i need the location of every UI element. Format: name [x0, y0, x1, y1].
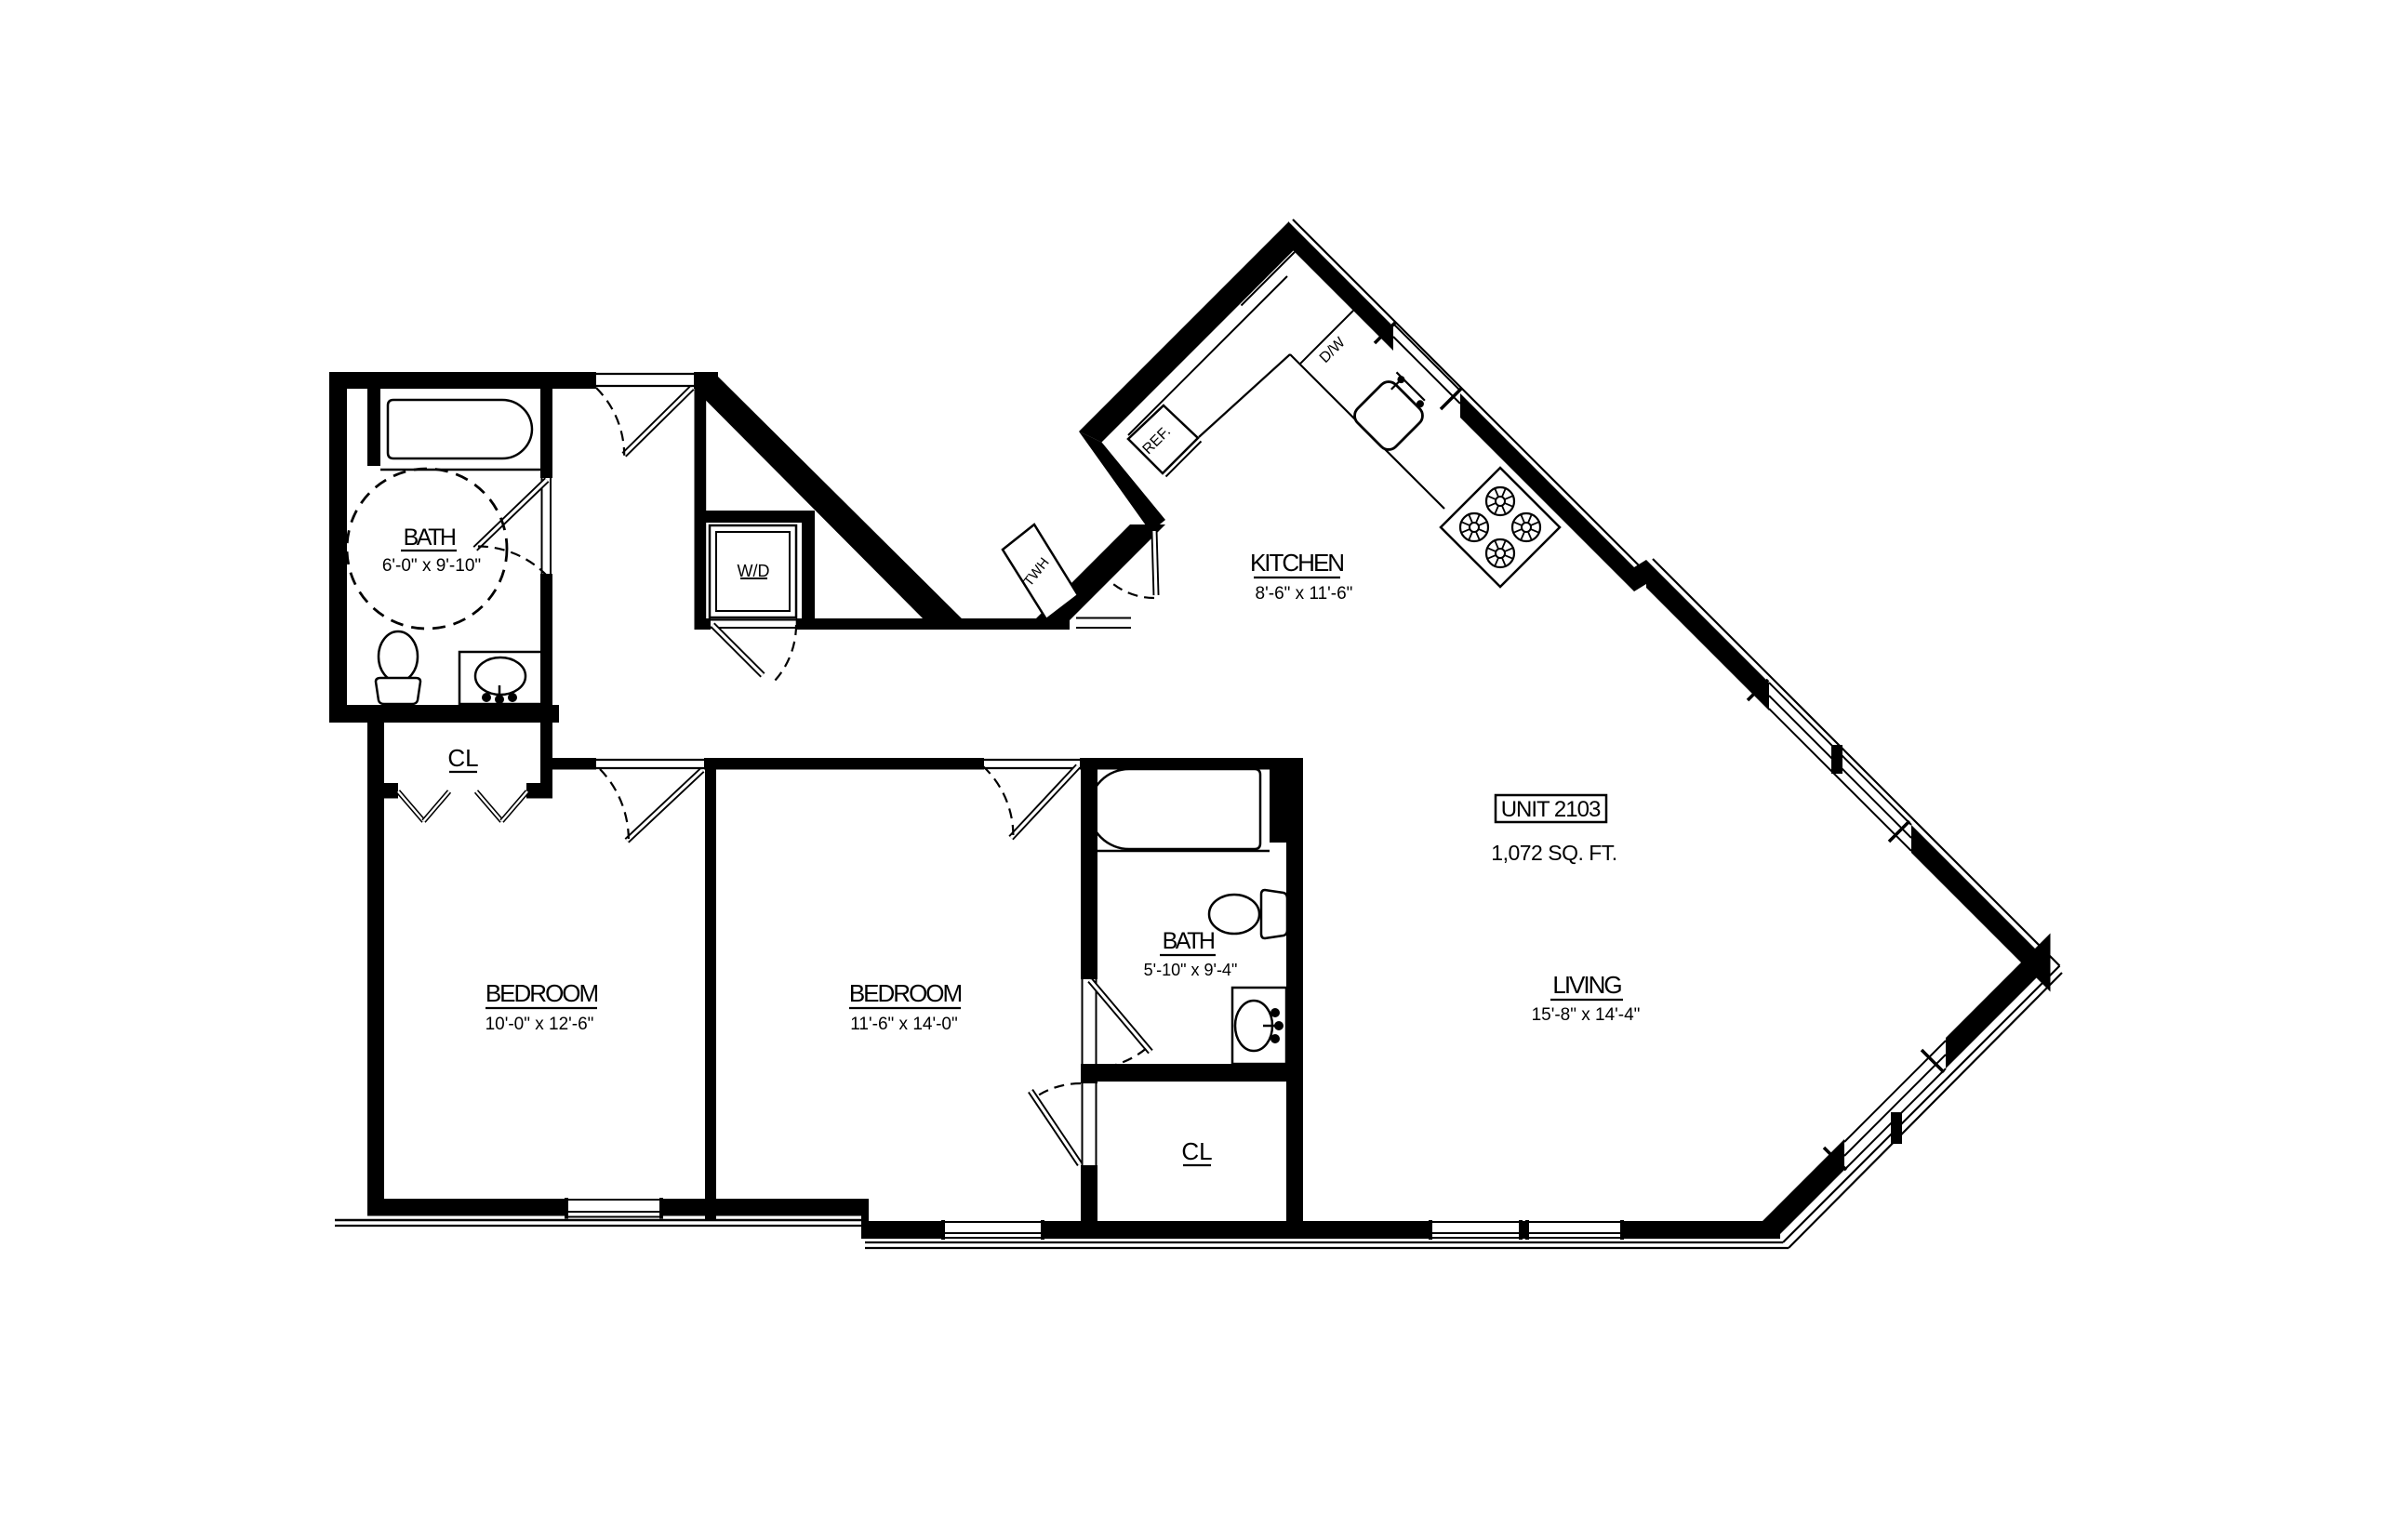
svg-text:LIVING: LIVING	[1552, 971, 1621, 999]
svg-text:1,072 SQ. FT.: 1,072 SQ. FT.	[1491, 841, 1616, 865]
svg-text:KITCHEN: KITCHEN	[1250, 549, 1343, 577]
svg-text:11'-6" x 14'-0": 11'-6" x 14'-0"	[850, 1015, 957, 1034]
svg-text:UNIT 2103: UNIT 2103	[1501, 797, 1601, 822]
svg-text:BEDROOM: BEDROOM	[486, 979, 598, 1007]
svg-text:8'-6" x 11'-6": 8'-6" x 11'-6"	[1256, 584, 1353, 604]
svg-text:CL: CL	[447, 744, 478, 772]
svg-text:CL: CL	[1181, 1137, 1212, 1165]
svg-text:BATH: BATH	[1163, 928, 1215, 954]
svg-text:BEDROOM: BEDROOM	[849, 979, 962, 1007]
svg-text:10'-0" x 12'-6": 10'-0" x 12'-6"	[486, 1015, 594, 1034]
svg-text:5'-10" x 9'-4": 5'-10" x 9'-4"	[1144, 961, 1238, 979]
svg-text:6'-0" x 9'-10": 6'-0" x 9'-10"	[382, 556, 481, 576]
svg-text:15'-8" x 14'-4": 15'-8" x 14'-4"	[1532, 1005, 1641, 1025]
svg-text:BATH: BATH	[404, 524, 456, 551]
